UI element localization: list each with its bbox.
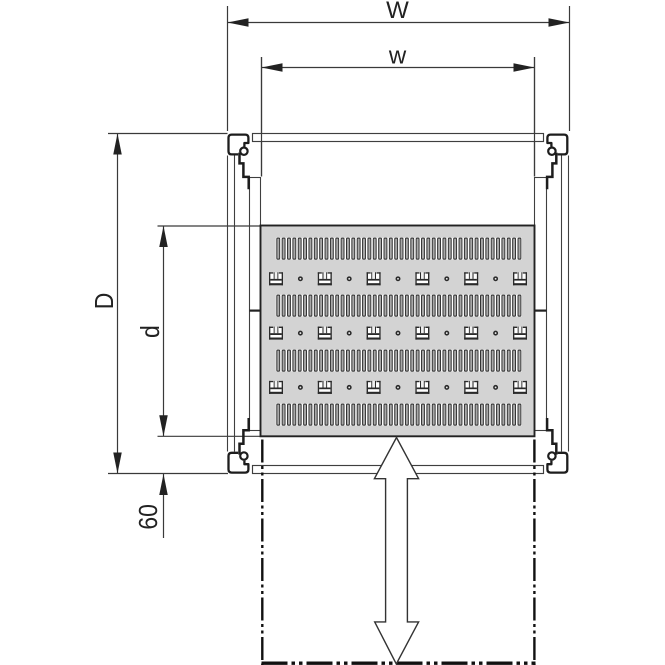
svg-text:60: 60 (135, 504, 163, 530)
svg-text:D: D (91, 293, 119, 310)
svg-text:W: W (386, 0, 409, 24)
svg-text:w: w (388, 42, 407, 69)
svg-text:d: d (137, 325, 165, 338)
